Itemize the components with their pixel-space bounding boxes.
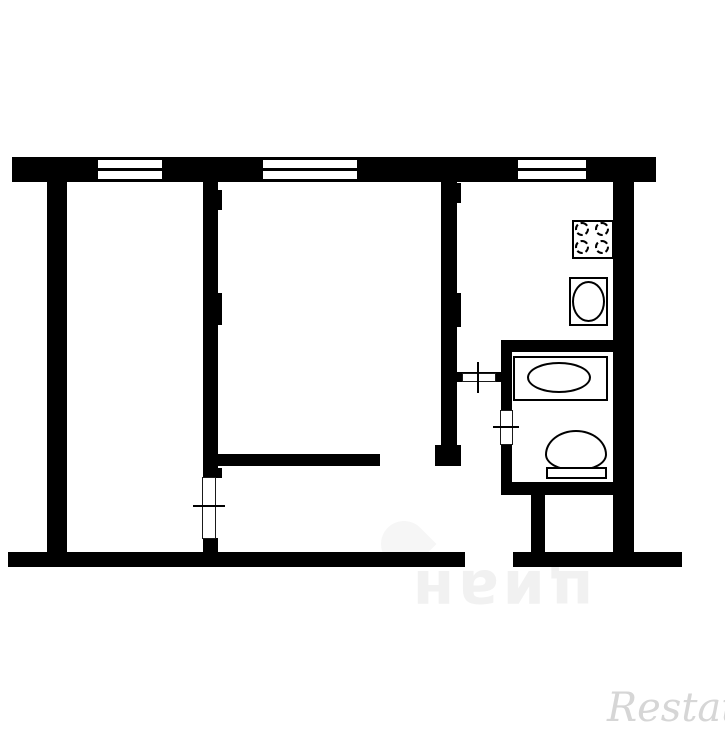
room1-door-tick xyxy=(193,505,225,507)
bathroom-top-wall xyxy=(501,340,613,352)
bathroom-door-tick xyxy=(493,426,519,428)
bathroom-left-wall-upper xyxy=(501,340,512,411)
bottom-wall-right xyxy=(513,552,682,567)
bathroom-left-wall-lower xyxy=(501,444,512,483)
kitchen-partition-cap xyxy=(435,445,461,466)
window-mullion xyxy=(263,168,357,171)
stove-burner xyxy=(575,240,589,254)
wall-bump xyxy=(218,468,222,478)
restate-watermark: Restate xyxy=(607,688,725,728)
stove-burner xyxy=(595,222,609,236)
toilet-tank xyxy=(546,467,607,479)
closet-wall xyxy=(531,495,545,552)
bathtub-basin xyxy=(527,362,591,393)
hallway-wall xyxy=(218,454,380,466)
wall-bump xyxy=(218,190,222,210)
room-partition-upper xyxy=(203,182,218,478)
right-wall xyxy=(613,182,634,552)
wall-bump xyxy=(218,293,222,325)
stove-burner xyxy=(575,222,589,236)
wall-bump xyxy=(457,183,461,203)
kitchen-partition xyxy=(441,182,457,445)
stove-burner xyxy=(595,240,609,254)
window-mullion xyxy=(98,168,162,171)
kitchen-sink-basin xyxy=(572,281,605,322)
window-mullion xyxy=(518,168,586,171)
floorplan-canvas: циан Restate xyxy=(0,0,725,725)
kitchen-door-leaf xyxy=(462,373,496,382)
kitchen-door-tick xyxy=(477,362,479,393)
wall-bump xyxy=(457,293,461,327)
floorplan-layer xyxy=(0,0,725,725)
toilet-bowl xyxy=(545,430,607,471)
room-partition-lower xyxy=(203,538,218,552)
room1-door-leaf xyxy=(202,477,216,539)
bottom-wall-left xyxy=(8,552,465,567)
left-wall xyxy=(47,182,67,552)
bathroom-bottom-wall xyxy=(501,482,613,495)
